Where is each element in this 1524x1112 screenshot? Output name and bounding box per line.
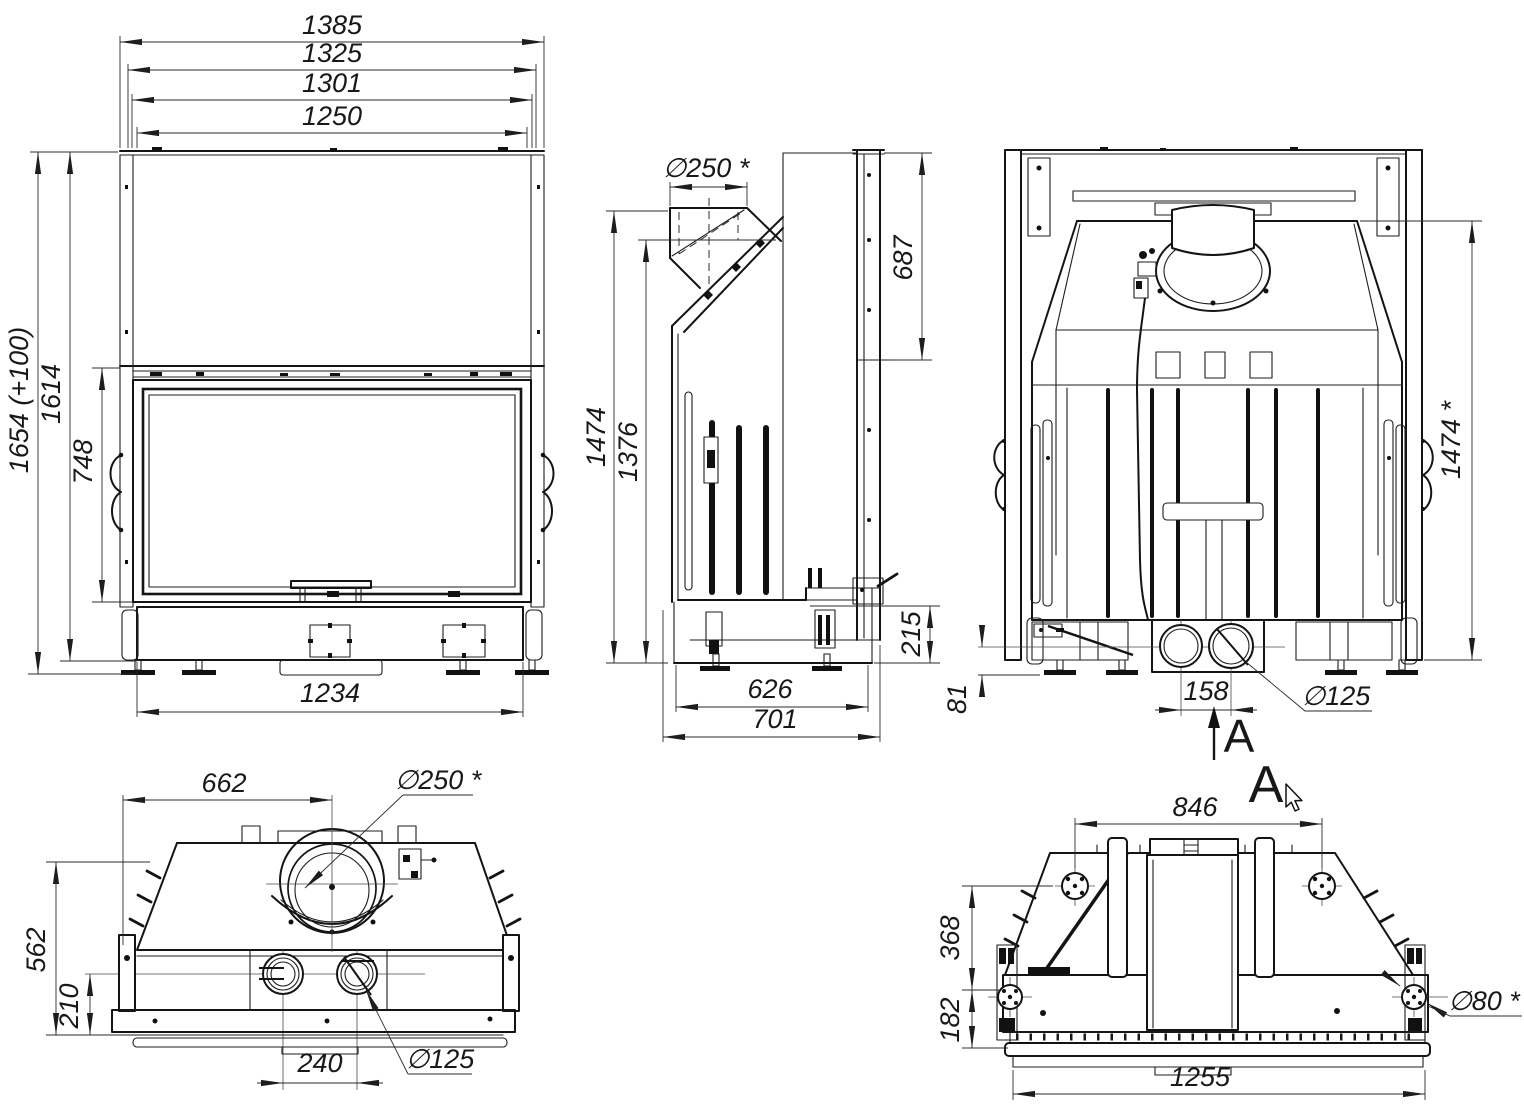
dim-front-door-height: 748	[68, 439, 98, 484]
section-view-title: A	[1249, 756, 1284, 814]
flue-collar	[1155, 203, 1271, 311]
dim-top-flue-offset: 662	[201, 768, 246, 798]
dim-rear-port-spacing: 158	[1183, 676, 1228, 706]
dim-side-flue: ∅250 *	[663, 153, 751, 183]
dim-top-port-diameter: ∅125	[406, 1044, 476, 1074]
dim-side-rear-panel: 687	[888, 234, 918, 280]
dim-section-width: 1255	[1170, 1062, 1231, 1092]
dim-rear-foot-height: 81	[942, 684, 972, 714]
dim-side-depth-overall: 701	[752, 704, 797, 734]
dim-rear-port-diameter: ∅125	[1302, 681, 1372, 711]
drawing-canvas: 1385 1325 1301 1250 1654 (+100) 1614 748	[0, 0, 1524, 1112]
dim-side-depth-base: 626	[747, 674, 793, 704]
dim-section-flange-diameter: ∅80 *	[1448, 986, 1521, 1016]
dim-section-depth-lower: 182	[935, 997, 965, 1042]
section-arrow-label: A	[1224, 710, 1255, 762]
dim-top-flue-diameter: ∅250 *	[395, 765, 483, 795]
dim-rear-height-total: 1474 *	[1436, 399, 1466, 479]
dim-front-width-mid: 1301	[302, 68, 362, 98]
dim-front-width-frame: 1325	[302, 38, 363, 68]
dim-section-flange-spacing: 846	[1172, 792, 1218, 822]
dim-section-depth-upper: 368	[935, 915, 965, 960]
dim-side-height-total: 1474	[581, 407, 611, 467]
dim-front-height-body: 1614	[36, 364, 66, 424]
dim-front-height-overall: 1654 (+100)	[4, 327, 34, 473]
paper	[0, 0, 1524, 1112]
dim-top-depth: 562	[21, 927, 51, 972]
dim-top-port-spacing: 240	[296, 1048, 342, 1078]
dim-side-base-height: 215	[896, 610, 926, 657]
dim-top-port-offset: 210	[54, 983, 84, 1029]
section-cut-arrow: A	[1208, 706, 1255, 762]
dim-front-base-width: 1234	[300, 678, 360, 708]
dim-side-height-front: 1376	[613, 421, 643, 482]
dim-front-width-opening: 1250	[302, 101, 362, 131]
dim-front-width-overall: 1385	[302, 10, 363, 40]
